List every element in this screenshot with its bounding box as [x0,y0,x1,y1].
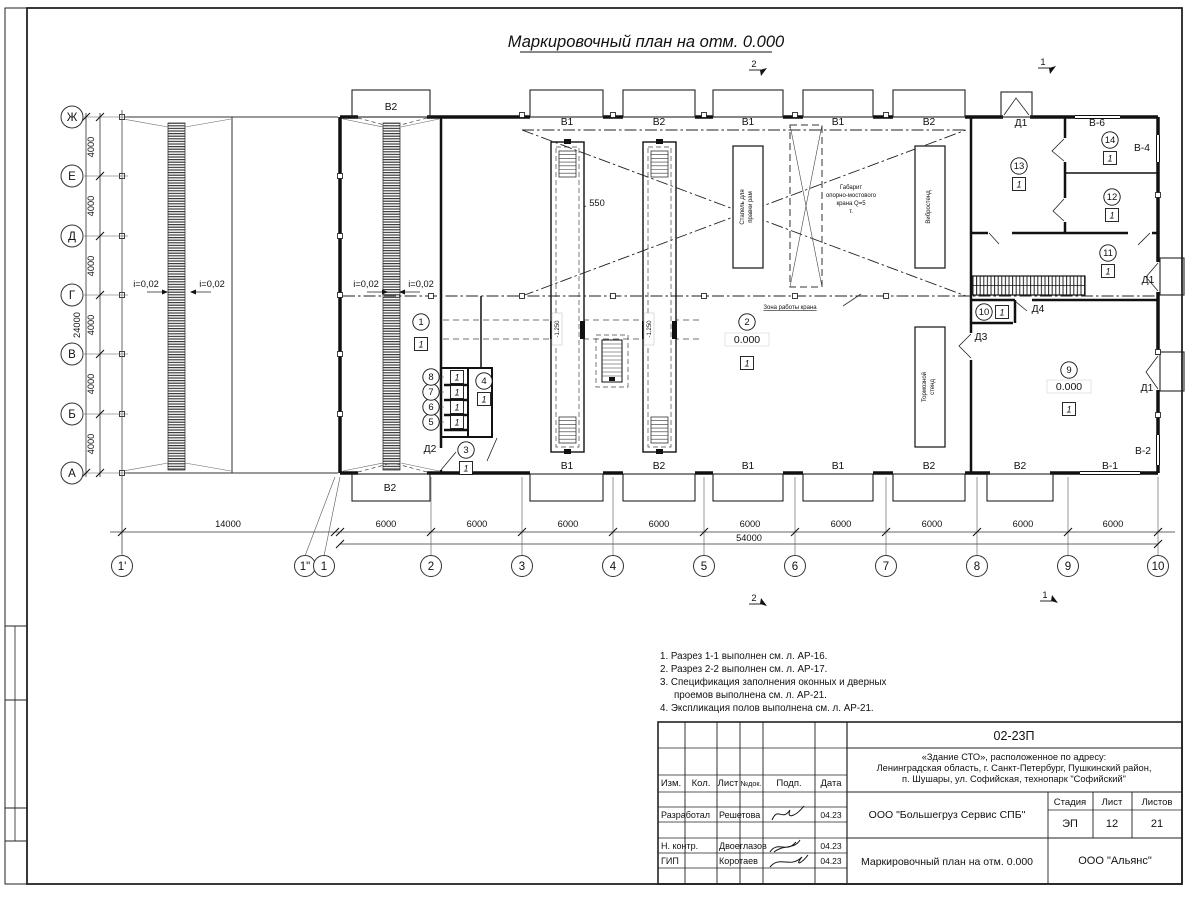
row-name: Двоеглазов [719,841,767,851]
row-role: Н. контр. [661,841,698,851]
column-marker [1156,350,1161,355]
section-arrow [760,598,767,606]
equipment-label: Тормозной [921,372,928,402]
opening-label: Д2 [424,444,437,455]
column-marker [338,412,343,417]
column-marker [520,294,525,299]
slope-label: i=0,02 [353,279,379,289]
opening-label: В2 [923,117,936,128]
section-arrow [760,68,767,76]
project-line: «Здание СТО», расположенное по адресу: [922,752,1106,762]
col-header: Подп. [776,778,801,789]
opening-label: В-2 [1135,446,1151,457]
stage-col: Листов [1142,797,1173,808]
floor-type: 1 [1016,180,1021,190]
floor-type: 1 [999,308,1004,318]
slope-arrowhead [190,290,196,295]
column-marker [338,293,343,298]
opening-label: Д3 [975,332,988,343]
col-header: Дата [820,778,842,789]
sheet-title-group: Маркировочный план на отм. 0.000 [508,33,785,52]
plan-annotations: Стапель дляправки рамВибростендТормозной… [61,57,1169,606]
column-marker [793,113,798,118]
column-marker [429,294,434,299]
col-header: Изм. [661,778,681,789]
note-line: 3. Спецификация заполнения оконных и две… [660,677,886,688]
axis-label: 9 [1065,561,1071,573]
opening-label: В2 [653,117,666,128]
room-number: 2 [744,317,749,328]
room-number: 3 [463,445,468,456]
opening-label: В-1 [1102,461,1118,472]
slope-label: i=0,02 [199,279,225,289]
dimension-label: 4000 [86,137,96,158]
floor-type: 1 [454,388,459,398]
column-marker [702,294,707,299]
section-mark: 2 [751,593,756,603]
pit-step [580,321,585,339]
axis-label: Г [69,290,76,302]
column-marker [884,113,889,118]
floor-type: 1 [454,418,459,428]
dimension-label: 54000 [736,533,762,543]
row-date: 04.23 [820,810,842,820]
axis-label: Д [68,231,76,243]
opening-label: В-4 [1134,143,1150,154]
dimension-label: 6000 [831,519,852,529]
row-role: ГИП [661,856,679,866]
column-marker [520,113,525,118]
axis-label: 1" [300,561,310,573]
floor-type: 1 [1066,405,1071,415]
opening-label: В1 [832,117,845,128]
axis-label: Б [68,409,76,421]
title-block: 02-23П «Здание СТО», расположенное по ад… [658,722,1182,884]
room-number: 4 [481,376,486,387]
floor-type: 1 [454,373,459,383]
crane-note: опорно-мостового [826,193,877,199]
room-number: 14 [1105,135,1116,146]
note-line: 2. Разрез 2-2 выполнен см. л. АР-17. [660,664,827,675]
opening-label: В-6 [1089,118,1105,129]
section-mark: 2 [751,59,756,69]
opening-label: В2 [1014,461,1027,472]
row-date: 04.23 [820,856,842,866]
room-number: 8 [428,372,433,383]
note-line: проемов выполнена см. л. АР-21. [674,690,827,701]
pit-mark [656,449,663,454]
opening-label: В2 [385,102,398,113]
dimension-label: 4000 [86,315,96,336]
opening-label: В2 [384,483,397,494]
axis-label: 10 [1152,561,1165,573]
column-marker [1156,413,1161,418]
row-name: Решетова [719,810,760,820]
dimension-label: 6000 [740,519,761,529]
room-number: 10 [979,307,990,318]
crane-clearance-x [790,125,822,287]
dimension-label: 24000 [72,312,82,338]
axis-label: 7 [883,561,889,573]
dimension-label: 4000 [86,374,96,395]
floor-type: 1 [418,340,423,350]
room-number: 5 [428,417,433,428]
column-marker [338,234,343,239]
equipment-label: правки рам [748,191,754,223]
slope-label: i=0,02 [133,279,159,289]
slope-arrowhead [162,290,168,295]
stair-mark [609,377,615,381]
equipment-label: Вибростенд [926,190,932,224]
column-marker [338,352,343,357]
axis-label: 1' [118,561,127,573]
project-line: Ленинградская область, г. Санкт-Петербур… [877,763,1152,773]
col-header: Кол. [692,778,711,789]
notes: 1. Разрез 1-1 выполнен см. л. АР-16. 2. … [660,651,886,714]
dimension-label: 4000 [86,256,96,277]
opening-label: В1 [561,117,574,128]
room-number: 11 [1103,248,1113,259]
pit-mark [656,139,663,144]
floor-type: 1 [1107,154,1112,164]
signature [770,806,808,867]
dimension-label: 6000 [922,519,943,529]
company: ООО "Большегруз Сервис СПБ" [869,809,1026,821]
pit-depth-label: -1.250 [647,320,653,338]
section-mark: 1 [1040,57,1045,67]
sheet-number: 12 [1106,818,1118,830]
axis-label: Ж [67,112,78,124]
axis-label: 6 [792,561,798,573]
column-marker [1156,193,1161,198]
section-arrow [1051,595,1058,603]
org-name: ООО "Альянс" [1078,855,1152,867]
column-marker [793,294,798,299]
note-line: 1. Разрез 1-1 выполнен см. л. АР-16. [660,651,827,662]
dimension-label: 6000 [1103,519,1124,529]
dimension-label: 4000 [86,434,96,455]
pit-step [672,321,677,339]
floor-type: 1 [454,403,459,413]
section-mark: 1 [1042,590,1047,600]
floor-type: 1 [744,359,749,369]
room-number: 6 [428,402,433,413]
equipment-label: Стапель для [740,189,746,224]
floor-type: 1 [1105,267,1110,277]
axis-label: В [68,349,76,361]
crane-note: крана Q=5 [836,201,866,207]
column-marker [611,113,616,118]
room-number: 9 [1066,365,1071,376]
col-header: Лист [718,778,739,789]
floor-type: 1 [463,464,468,474]
axis-leader [305,477,335,556]
opening-label: Д1 [1141,383,1154,394]
opening-label: В2 [923,461,936,472]
floor-type: 1 [1109,211,1114,221]
dimension-label: 6000 [558,519,579,529]
crane-note: Габарит [840,185,863,191]
room-number: 12 [1107,192,1118,203]
elevation-label: 0.000 [1056,381,1082,393]
room-number: 7 [428,387,433,398]
stage-value: ЭП [1062,818,1078,830]
pit-depth-label: -1.250 [555,320,561,338]
floor-type: 1 [481,395,486,405]
section-arrow [1049,66,1056,74]
opening-label: В1 [742,461,755,472]
drainage-channel [383,123,400,470]
column-marker [611,294,616,299]
room-number: 13 [1014,161,1025,172]
axis-label: Е [68,171,76,183]
axis-leader [324,477,340,556]
windows [1075,116,1160,475]
opening-label: Д1 [1142,275,1155,286]
project-line: п. Шушары, ул. Софийская, технопарк "Соф… [902,774,1126,784]
pit-mark [564,449,571,454]
opening-label: В1 [742,117,755,128]
slope-label: i=0,02 [408,279,434,289]
dimension-label: 4000 [86,196,96,217]
row-date: 04.23 [820,841,842,851]
crane-note: т. [849,209,853,215]
col-header: №док. [740,779,761,788]
stage-col: Стадия [1054,797,1086,808]
column-marker [702,113,707,118]
row-name: Коротаев [719,856,758,866]
axis-label: 2 [428,561,434,573]
equipment-label: стенд [930,379,936,395]
drainage-channel [168,123,185,470]
axis-label: 3 [519,561,525,573]
dimension-label: 6000 [1013,519,1034,529]
elevation-label: 0.000 [734,334,760,346]
opening-label: В2 [653,461,666,472]
stage-col: Лист [1102,797,1123,808]
dimension-label: 6000 [467,519,488,529]
opening-label: Д1 [1015,118,1028,129]
drawing-sheet: Маркировочный план на отм. 0.000 [0,0,1200,900]
column-marker [884,294,889,299]
axis-label: 1 [321,561,327,573]
doc-number: 02-23П [994,729,1035,743]
crane-zone-label: Зона работы крана [763,305,817,311]
opening-label: В1 [561,461,574,472]
sheet-title: Маркировочный план на отм. 0.000 [508,33,785,51]
dimension-label: 14000 [215,519,241,529]
room-number: 1 [418,317,423,328]
opening-label: В1 [832,461,845,472]
dimension-label: 6000 [649,519,670,529]
column-marker [338,174,343,179]
axis-label: 5 [701,561,707,573]
axis-label: 4 [610,561,617,573]
dimension-label: 6000 [376,519,397,529]
sheet-name: Маркировочный план на отм. 0.000 [861,856,1033,868]
pit-mark [564,139,571,144]
opening-label: Д4 [1032,304,1045,315]
dimension-lines [86,113,1175,544]
row-role: Разработал [661,810,710,820]
note-line: 4. Экспликация полов выполнена см. л. АР… [660,703,874,714]
axis-label: А [68,468,76,480]
sheets-total: 21 [1151,818,1163,830]
dimension-label: 550 [589,198,605,208]
axis-label: 8 [974,561,980,573]
